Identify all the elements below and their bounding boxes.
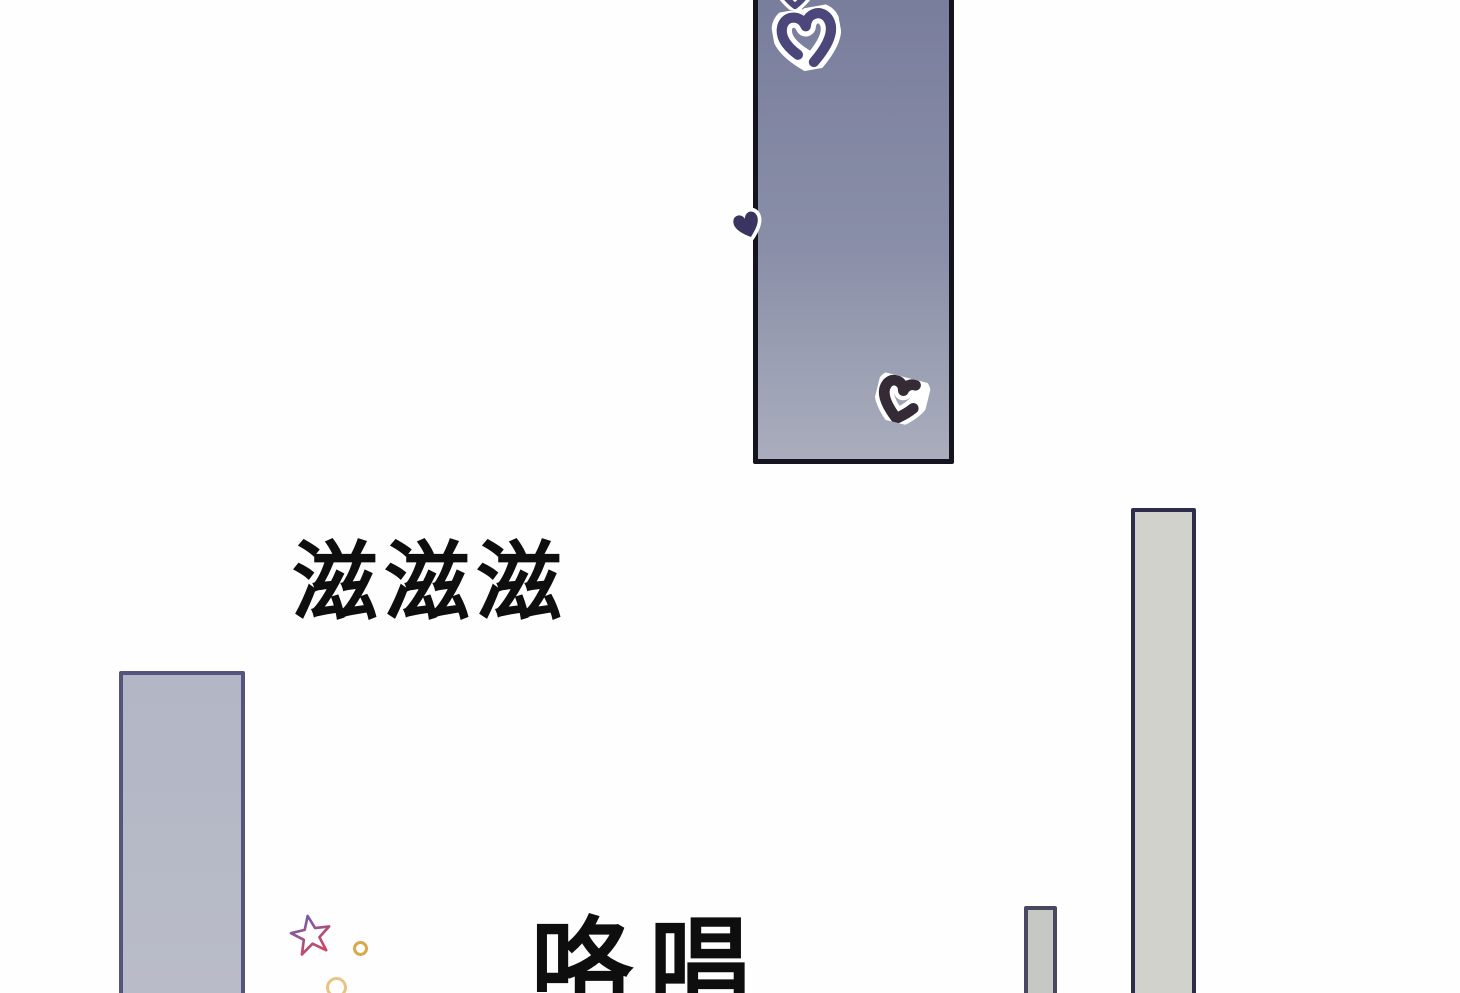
comic-page: 滋滋滋 咯唱 bbox=[0, 0, 1460, 993]
star-doodle-icon bbox=[285, 909, 338, 960]
sparkle-circle-icon bbox=[353, 941, 368, 956]
sfx-bottom-text: 咯唱 bbox=[531, 916, 767, 993]
panel-small-bar bbox=[1024, 906, 1057, 993]
panel-left bbox=[119, 671, 245, 993]
sfx-sizzle-text: 滋滋滋 bbox=[292, 540, 568, 626]
panel-right bbox=[1131, 508, 1196, 993]
heart-doodle-large-icon bbox=[769, 3, 847, 76]
sparkle-circle-partial-icon bbox=[326, 977, 347, 993]
